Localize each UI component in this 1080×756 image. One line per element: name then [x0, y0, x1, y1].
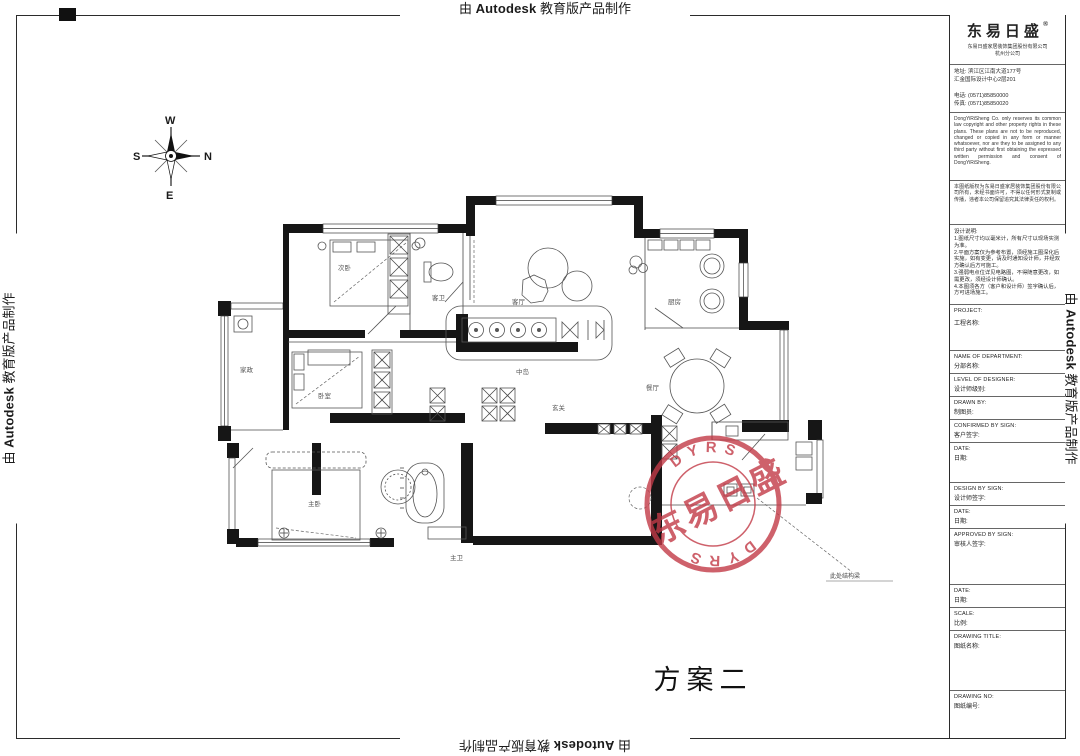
field-approved-cn: 审核人签字:: [954, 539, 1061, 548]
furniture-master: [266, 452, 415, 540]
wardrobe-strip-b: [372, 350, 392, 414]
phone-line: 电话: (0571)85850000: [954, 92, 1061, 100]
compass-n: N: [204, 151, 212, 163]
tb-drawn: DRAWN BY: 制图员:: [950, 397, 1065, 420]
beam-note-label: 此处结构梁: [830, 572, 860, 580]
furniture-kitchen: [648, 240, 724, 313]
tb-contact: 地址: 滨江区江南大道177号 汇金国际设计中心2层201 电话: (0571)…: [950, 65, 1065, 113]
company-logo: 东易日盛®: [954, 20, 1061, 41]
fax-line: 传真: (0571)85850020: [954, 100, 1061, 108]
furniture-bedroom3: [292, 350, 392, 414]
field-dtitle-cn: 图纸名称:: [954, 641, 1061, 650]
tb-date1: DATE: 日期:: [950, 443, 1065, 483]
field-date2-cn: 日期:: [954, 516, 1061, 525]
field-confirmed-en: CONFIRMED BY SIGN:: [954, 423, 1061, 429]
company-line2: 杭州分公司: [995, 51, 1020, 57]
field-date3-cn: 日期:: [954, 595, 1061, 604]
room-label-master: 主卧: [308, 499, 322, 508]
tb-scale: SCALE: 比例:: [950, 608, 1065, 631]
tb-confirmed: CONFIRMED BY SIGN: 客户签字:: [950, 420, 1065, 443]
field-design-cn: 设计师签字:: [954, 493, 1061, 502]
field-department-cn: 分部名称:: [954, 361, 1061, 370]
furniture-bedroom2: [308, 234, 420, 365]
field-dno-cn: 图纸编号:: [954, 701, 1061, 710]
copyright-english: DongYiRiSheng Co. only reserves its comm…: [954, 116, 1061, 166]
compass-rose: W N E S: [133, 115, 212, 202]
field-department-en: NAME OF DEPARTMENT:: [954, 354, 1061, 360]
tb-copyright-en: DongYiRiSheng Co. only reserves its comm…: [950, 113, 1065, 181]
address-line1: 地址: 滨江区江南大道177号: [954, 68, 1061, 76]
compass-w: W: [165, 115, 176, 127]
field-dno-en: DRAWING NO:: [954, 694, 1061, 700]
tb-department: NAME OF DEPARTMENT: 分部名称:: [950, 351, 1065, 374]
room-labels: 次卧 客卫 客厅 中岛 厨房 餐厅 玄关 卧室 家政 主卧 主卫: [240, 263, 681, 562]
furniture-dining: [662, 348, 731, 424]
room-label-utility: 家政: [240, 365, 254, 374]
field-drawn-en: DRAWN BY:: [954, 400, 1061, 406]
wardrobe-strip-a: [388, 234, 410, 314]
field-scale-cn: 比例:: [954, 618, 1061, 627]
furniture-utility-left: [231, 316, 283, 430]
field-scale-en: SCALE:: [954, 611, 1061, 617]
field-project-cn: 工程名称:: [954, 318, 1061, 327]
field-design-en: DESIGN BY SIGN:: [954, 486, 1061, 492]
company-name: 东易日盛: [967, 24, 1043, 40]
tb-date2: DATE: 日期:: [950, 506, 1065, 529]
company-fullname: 东易日盛家居装饰集团股份有限公司杭州分公司: [954, 44, 1061, 58]
notes-body: 1.图纸尺寸均以毫米计，所有尺寸以现场实测为准。 2.平面方案仅为参考布置，须经…: [954, 236, 1061, 297]
notes-title: 设计说明:: [954, 228, 1061, 236]
tb-logo: 东易日盛® 东易日盛家居装饰集团股份有限公司杭州分公司: [950, 15, 1065, 65]
tb-copyright-cn: 本图纸版权为东易日盛家居装饰集团股份有限公司所有，未经书面许可，不得以任何形式复…: [950, 181, 1065, 225]
tb-drawing-title: DRAWING TITLE: 图纸名称:: [950, 631, 1065, 691]
room-label-foyer: 玄关: [552, 403, 566, 412]
furniture-living: [522, 248, 648, 303]
compass-s: S: [133, 151, 140, 163]
company-stamp: DYRS DYRS 东易日盛: [644, 438, 794, 570]
field-confirmed-cn: 客户签字:: [954, 430, 1061, 439]
drawing-sheet: 由 Autodesk 教育版产品制作 由 Autodesk 教育版产品制作 由 …: [0, 0, 1080, 756]
room-label-kitchen: 厨房: [668, 297, 681, 306]
room-label-island: 中岛: [516, 367, 529, 376]
tb-date3: DATE: 日期:: [950, 585, 1065, 608]
room-label-living: 客厅: [512, 297, 526, 306]
field-dtitle-en: DRAWING TITLE:: [954, 634, 1061, 640]
field-level-en: LEVEL OF DESIGNER:: [954, 377, 1061, 383]
registered-mark: ®: [1043, 20, 1048, 28]
scheme-title: 方案二: [648, 658, 758, 697]
field-date1-cn: 日期:: [954, 453, 1061, 462]
address-line2: 汇金国际设计中心2层201: [954, 76, 1061, 84]
field-level-cn: 设计师级别:: [954, 384, 1061, 393]
title-block: 东易日盛® 东易日盛家居装饰集团股份有限公司杭州分公司 地址: 滨江区江南大道1…: [949, 15, 1065, 738]
field-approved-en: APPROVED BY SIGN:: [954, 532, 1061, 538]
tb-design-notes: 设计说明: 1.图纸尺寸均以毫米计，所有尺寸以现场实测为准。 2.平面方案仅为参…: [950, 225, 1065, 305]
copyright-chinese: 本图纸版权为东易日盛家居装饰集团股份有限公司所有，未经书面许可，不得以任何形式复…: [954, 184, 1061, 203]
room-label-master-bath: 主卫: [450, 553, 464, 562]
tb-approved: APPROVED BY SIGN: 审核人签字:: [950, 529, 1065, 585]
room-label-bedroom3: 卧室: [318, 391, 332, 400]
tb-project: PROJECT: 工程名称:: [950, 305, 1065, 351]
tb-drawing-no: DRAWING NO: 图纸编号:: [950, 691, 1065, 738]
field-date2-en: DATE:: [954, 509, 1061, 515]
floor-plan: W N E S: [0, 0, 1080, 756]
room-label-bath2: 客卫: [432, 293, 446, 302]
room-label-bedroom2: 次卧: [338, 263, 352, 272]
tb-level: LEVEL OF DESIGNER: 设计师级别:: [950, 374, 1065, 397]
field-date3-en: DATE:: [954, 588, 1061, 594]
room-label-dining: 餐厅: [646, 383, 660, 392]
furniture-bath2: [415, 238, 453, 282]
compass-e: E: [166, 190, 173, 202]
tb-design-sign: DESIGN BY SIGN: 设计师签字:: [950, 483, 1065, 506]
company-line1: 东易日盛家居装饰集团股份有限公司: [967, 44, 1047, 50]
furniture-island: [446, 306, 612, 360]
field-project-en: PROJECT:: [954, 308, 1061, 314]
field-drawn-cn: 制图员:: [954, 407, 1061, 416]
field-date1-en: DATE:: [954, 446, 1061, 452]
